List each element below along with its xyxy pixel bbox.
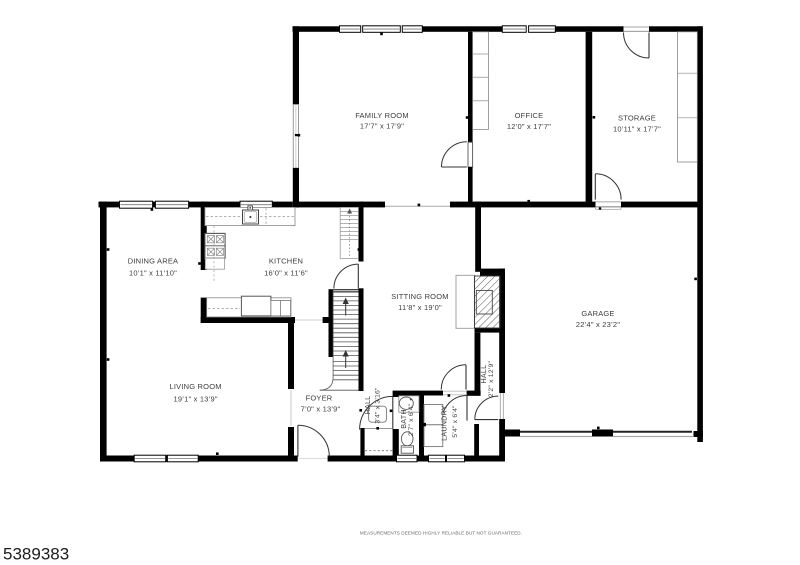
- svg-text:DINING AREA: DINING AREA: [128, 257, 179, 266]
- svg-text:SITTING ROOM: SITTING ROOM: [391, 292, 448, 301]
- svg-text:11’8" x 19’0": 11’8" x 19’0": [398, 303, 442, 312]
- svg-text:HALL: HALL: [363, 396, 372, 415]
- svg-text:KITCHEN: KITCHEN: [269, 257, 303, 266]
- svg-text:STORAGE: STORAGE: [618, 114, 656, 123]
- svg-text:FAMILY ROOM: FAMILY ROOM: [355, 111, 409, 120]
- svg-text:OFFICE: OFFICE: [515, 111, 544, 120]
- svg-text:LIVING ROOM: LIVING ROOM: [169, 382, 221, 391]
- svg-text:MEASUREMENTS DEEMED HIGHLY REL: MEASUREMENTS DEEMED HIGHLY RELIABLE BUT …: [360, 530, 522, 535]
- svg-text:10’11" x 17’7": 10’11" x 17’7": [613, 125, 661, 134]
- svg-text:22’4" x 23’2": 22’4" x 23’2": [576, 320, 620, 329]
- svg-text:HALL: HALL: [479, 365, 488, 384]
- svg-text:BATH: BATH: [399, 409, 408, 428]
- svg-text:GARAGE: GARAGE: [581, 309, 614, 318]
- svg-text:16’0" x 11’6": 16’0" x 11’6": [264, 268, 308, 277]
- svg-text:7’0" x 13’9": 7’0" x 13’9": [301, 405, 341, 414]
- svg-text:10’1" x 11’10": 10’1" x 11’10": [129, 268, 177, 277]
- svg-text:3’4" x 3’16": 3’4" x 3’16": [374, 387, 381, 424]
- svg-text:FOYER: FOYER: [306, 394, 333, 403]
- svg-text:5’4" x 6’4": 5’4" x 6’4": [452, 405, 459, 438]
- svg-text:19’1" x 13’9": 19’1" x 13’9": [173, 394, 217, 403]
- svg-text:12’0" x 17’7": 12’0" x 17’7": [507, 122, 551, 131]
- svg-text:17’7" x 17’9": 17’7" x 17’9": [360, 122, 404, 131]
- svg-text:5389383: 5389383: [3, 545, 69, 564]
- svg-text:2’7" x 6’4": 2’7" x 6’4": [408, 403, 415, 436]
- svg-text:LAUNDRY: LAUNDRY: [439, 405, 448, 441]
- svg-text:2’2" x 12’9": 2’2" x 12’9": [488, 361, 495, 398]
